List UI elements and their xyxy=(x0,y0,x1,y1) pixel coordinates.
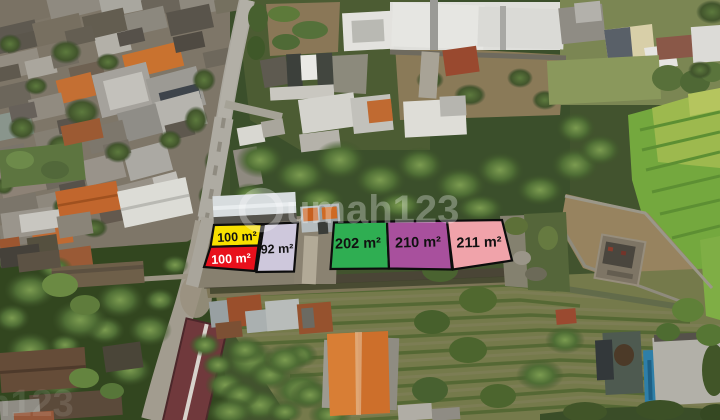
svg-text:202 m²: 202 m² xyxy=(335,235,382,252)
svg-text:ah123: ah123 xyxy=(0,383,74,420)
svg-text:211 m²: 211 m² xyxy=(456,234,502,251)
svg-text:210 m²: 210 m² xyxy=(395,234,442,251)
svg-text:100 m²: 100 m² xyxy=(217,229,257,245)
svg-text:92 m²: 92 m² xyxy=(260,241,293,256)
svg-text:umah123: umah123 xyxy=(286,188,459,232)
svg-text:100 m²: 100 m² xyxy=(211,251,251,267)
